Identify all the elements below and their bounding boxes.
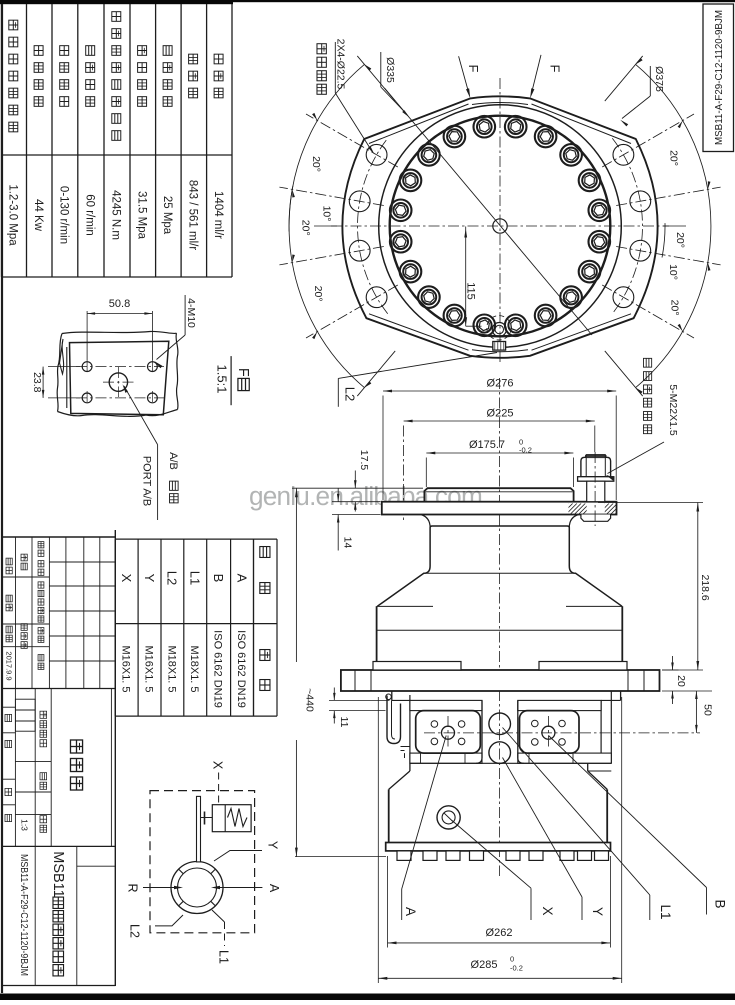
svg-text:23.8: 23.8 <box>31 372 43 393</box>
svg-text:25 Mpa: 25 Mpa <box>161 196 173 235</box>
svg-text:A: A <box>267 884 281 893</box>
svg-text:M16X1. 5: M16X1. 5 <box>143 645 155 692</box>
svg-text:B: B <box>712 899 727 908</box>
svg-text:L1: L1 <box>658 904 673 919</box>
svg-text:5-M22X1.5: 5-M22X1.5 <box>667 384 679 436</box>
svg-text:20°: 20° <box>310 156 322 172</box>
svg-text:ISO 6162 DN19: ISO 6162 DN19 <box>235 630 247 708</box>
svg-text:843 / 561 ml/r: 843 / 561 ml/r <box>186 180 198 250</box>
svg-text:M18X1. 5: M18X1. 5 <box>165 645 177 692</box>
svg-text:PORT A/B: PORT A/B <box>141 456 153 506</box>
svg-text:L1: L1 <box>216 950 230 964</box>
svg-text:20°: 20° <box>669 300 681 316</box>
svg-text:~440: ~440 <box>304 688 316 712</box>
svg-text:Ø175.7: Ø175.7 <box>469 439 505 451</box>
svg-text:115: 115 <box>465 282 477 300</box>
svg-text:20°: 20° <box>668 150 680 166</box>
svg-text:20°: 20° <box>300 220 312 236</box>
svg-text:1:3: 1:3 <box>20 819 30 831</box>
svg-text:4245 N.m: 4245 N.m <box>110 190 122 240</box>
svg-text:Y: Y <box>142 574 157 583</box>
svg-text:Ø225: Ø225 <box>487 408 514 420</box>
svg-text:X: X <box>211 761 225 770</box>
svg-text:M16X1. 5: M16X1. 5 <box>120 645 132 692</box>
svg-text:Y: Y <box>590 907 605 916</box>
svg-text:0: 0 <box>510 955 514 964</box>
svg-text:F: F <box>466 65 481 73</box>
svg-text:2X4-Ø22.5: 2X4-Ø22.5 <box>335 39 347 90</box>
svg-text:R: R <box>126 883 140 892</box>
svg-text:L2: L2 <box>342 387 357 401</box>
svg-text:10°: 10° <box>667 264 679 280</box>
svg-text:Ø335: Ø335 <box>384 57 396 83</box>
svg-text:F: F <box>235 368 251 377</box>
svg-text:10°: 10° <box>321 206 333 222</box>
svg-text:X: X <box>540 906 555 915</box>
svg-text:L1: L1 <box>188 571 203 585</box>
svg-text:0-130 r/min: 0-130 r/min <box>57 186 69 244</box>
svg-text:L2: L2 <box>165 571 180 585</box>
svg-text:B: B <box>211 574 226 583</box>
svg-text:-0.2: -0.2 <box>510 964 523 973</box>
svg-text:17.5: 17.5 <box>358 450 370 471</box>
svg-text:1.5:1: 1.5:1 <box>214 365 229 394</box>
svg-text:X: X <box>119 574 134 583</box>
svg-text:ISO 6162 DN19: ISO 6162 DN19 <box>212 630 224 708</box>
svg-text:2017.9.9: 2017.9.9 <box>5 651 14 680</box>
svg-text:20°: 20° <box>312 286 324 302</box>
svg-text:M18X1. 5: M18X1. 5 <box>188 645 200 692</box>
svg-text:F: F <box>548 65 563 73</box>
svg-text:A: A <box>403 907 418 916</box>
svg-text:50: 50 <box>702 704 714 716</box>
svg-text:4-M10: 4-M10 <box>185 298 197 328</box>
svg-text:44 Kw: 44 Kw <box>32 199 44 232</box>
svg-text:MSB11-A-F29-C12-1120-9BJM: MSB11-A-F29-C12-1120-9BJM <box>714 10 725 145</box>
svg-text:11: 11 <box>338 717 350 728</box>
svg-text:Ø285: Ø285 <box>471 959 498 971</box>
svg-text:60 r/min: 60 r/min <box>83 194 95 236</box>
svg-text:31.5 Mpa: 31.5 Mpa <box>135 191 147 240</box>
svg-text:14: 14 <box>342 537 354 549</box>
svg-text:Ø262: Ø262 <box>486 927 513 939</box>
svg-text:L2: L2 <box>128 924 142 938</box>
svg-text:20: 20 <box>675 675 687 687</box>
svg-text:50.8: 50.8 <box>109 298 130 310</box>
svg-text:MSB11: MSB11 <box>50 851 66 897</box>
svg-text:A: A <box>234 574 249 583</box>
svg-text:Ø276: Ø276 <box>487 378 514 390</box>
svg-text:MSB11-A-F29-C12-1120-9BJM: MSB11-A-F29-C12-1120-9BJM <box>18 854 29 976</box>
svg-text:1.2-3.0 Mpa: 1.2-3.0 Mpa <box>7 184 19 246</box>
svg-text:A/B: A/B <box>167 452 179 470</box>
svg-text:218.6: 218.6 <box>699 574 711 600</box>
svg-text:20°: 20° <box>674 232 686 248</box>
svg-text:1404 ml/r: 1404 ml/r <box>212 191 224 239</box>
svg-text:Y: Y <box>266 841 280 850</box>
